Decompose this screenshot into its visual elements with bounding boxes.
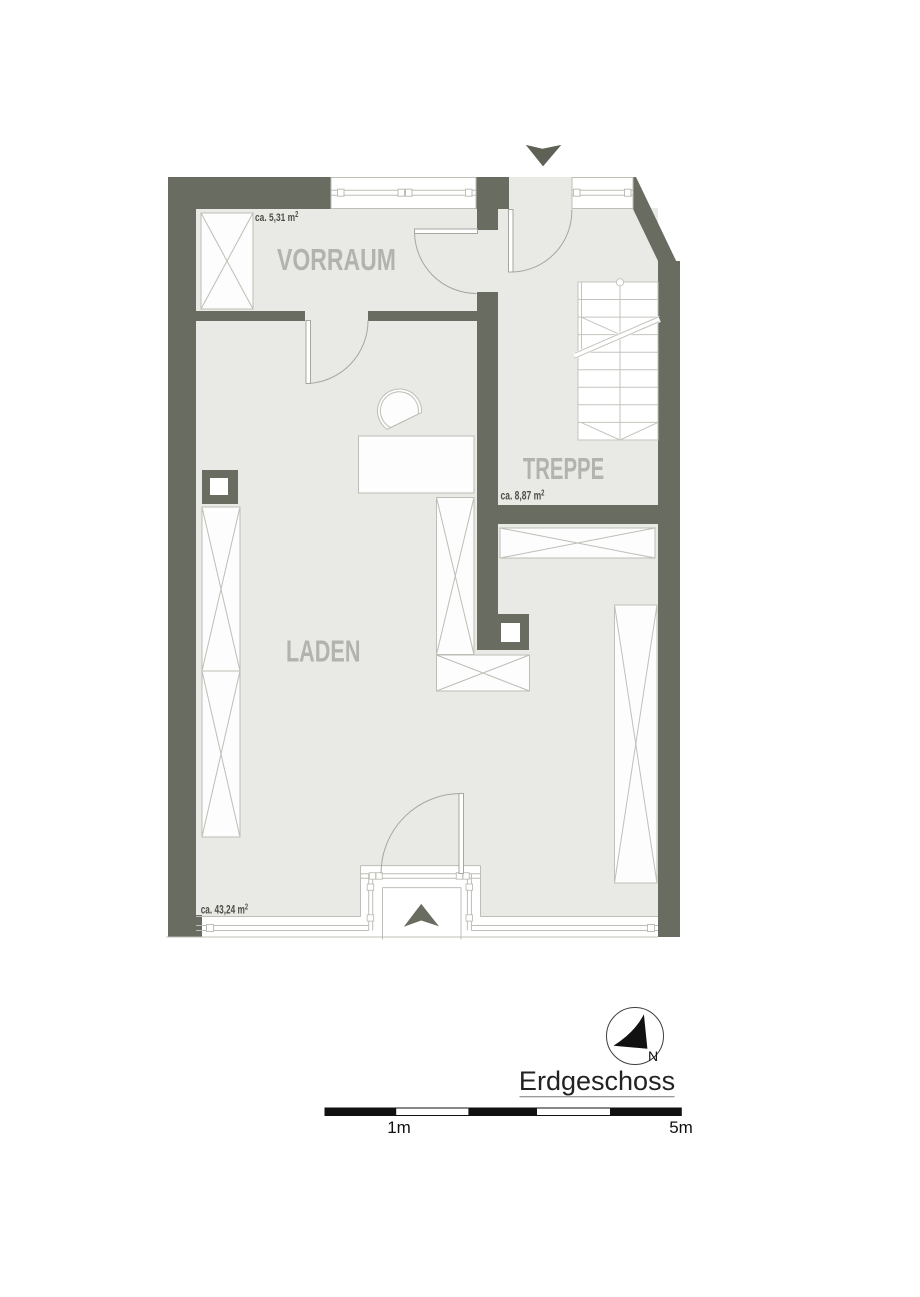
svg-text:Erdgeschoss: Erdgeschoss	[519, 1066, 675, 1096]
svg-text:LADEN: LADEN	[286, 634, 360, 669]
svg-text:ca. 5,31 m2: ca. 5,31 m2	[255, 211, 298, 224]
svg-text:ca. 43,24 m2: ca. 43,24 m2	[201, 904, 248, 917]
svg-text:N: N	[648, 1048, 658, 1064]
svg-text:5m: 5m	[669, 1118, 693, 1137]
svg-text:VORRAUM: VORRAUM	[277, 243, 396, 277]
svg-text:TREPPE: TREPPE	[523, 453, 604, 486]
svg-text:ca. 8,87 m2: ca. 8,87 m2	[501, 490, 545, 503]
svg-text:1m: 1m	[387, 1118, 411, 1137]
